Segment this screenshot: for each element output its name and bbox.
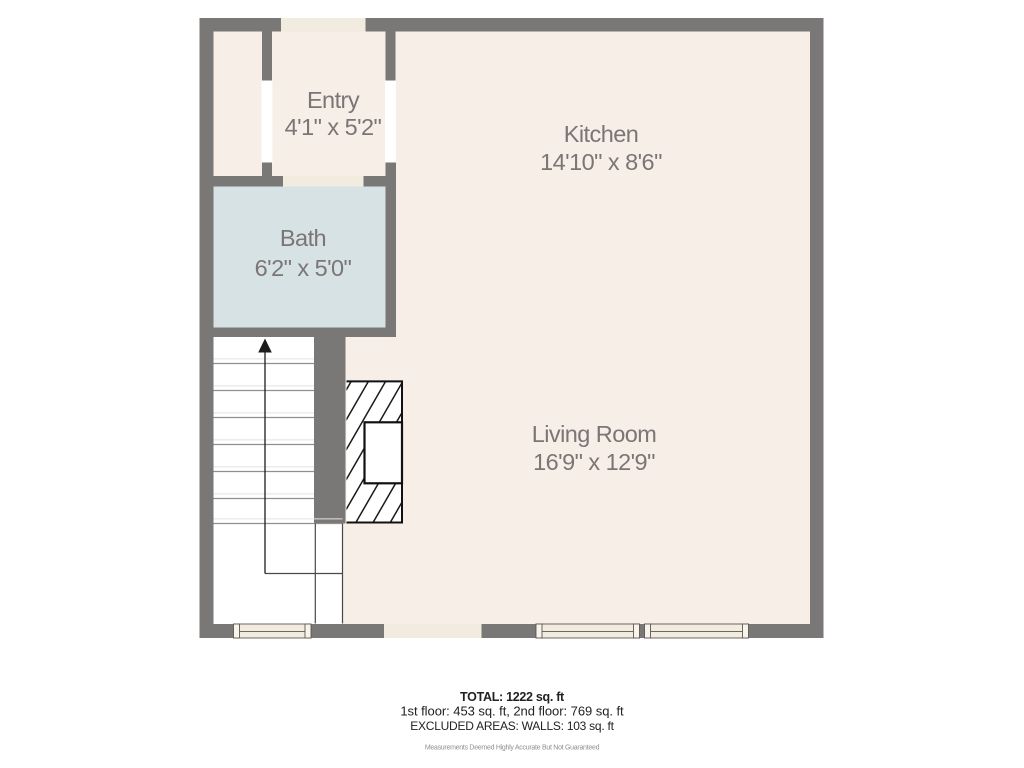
svg-text:6'2" x 5'0": 6'2" x 5'0": [255, 255, 352, 281]
svg-text:TOTAL: 1222 sq. ft: TOTAL: 1222 sq. ft: [460, 690, 565, 704]
svg-text:Kitchen: Kitchen: [564, 121, 639, 147]
svg-text:1st floor: 453 sq. ft, 2nd flo: 1st floor: 453 sq. ft, 2nd floor: 769 sq…: [400, 704, 624, 719]
svg-text:EXCLUDED AREAS: WALLS: 103 sq.: EXCLUDED AREAS: WALLS: 103 sq. ft: [410, 719, 614, 733]
svg-text:Bath: Bath: [280, 225, 326, 251]
svg-text:16'9" x 12'9": 16'9" x 12'9": [533, 449, 655, 475]
svg-text:Entry: Entry: [307, 87, 360, 113]
svg-text:14'10" x 8'6": 14'10" x 8'6": [540, 149, 662, 175]
svg-text:Measurements Deemed Highly Acc: Measurements Deemed Highly Accurate But …: [425, 745, 600, 752]
svg-text:4'1" x 5'2": 4'1" x 5'2": [285, 114, 382, 140]
svg-text:Living Room: Living Room: [532, 421, 657, 447]
